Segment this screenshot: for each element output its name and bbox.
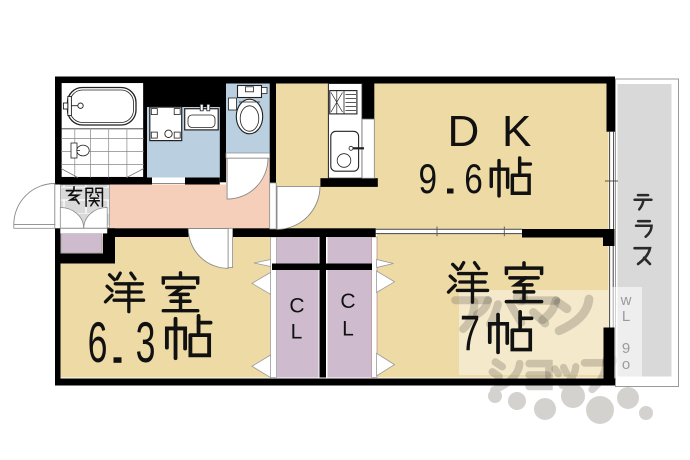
svg-text:9: 9 bbox=[419, 157, 438, 203]
svg-text:3: 3 bbox=[136, 312, 156, 376]
svg-text:9: 9 bbox=[622, 340, 630, 357]
svg-text:L: L bbox=[622, 308, 630, 325]
svg-text:L: L bbox=[342, 318, 354, 341]
svg-text:6: 6 bbox=[464, 157, 483, 203]
svg-text:C: C bbox=[340, 290, 355, 313]
svg-text:o: o bbox=[622, 356, 630, 373]
svg-text:w: w bbox=[620, 292, 632, 309]
svg-text:L: L bbox=[291, 321, 303, 344]
svg-text:K: K bbox=[502, 107, 531, 156]
svg-text:6: 6 bbox=[88, 312, 108, 376]
svg-text:C: C bbox=[289, 295, 304, 318]
svg-text:7: 7 bbox=[460, 307, 480, 362]
svg-text:D: D bbox=[448, 107, 480, 156]
